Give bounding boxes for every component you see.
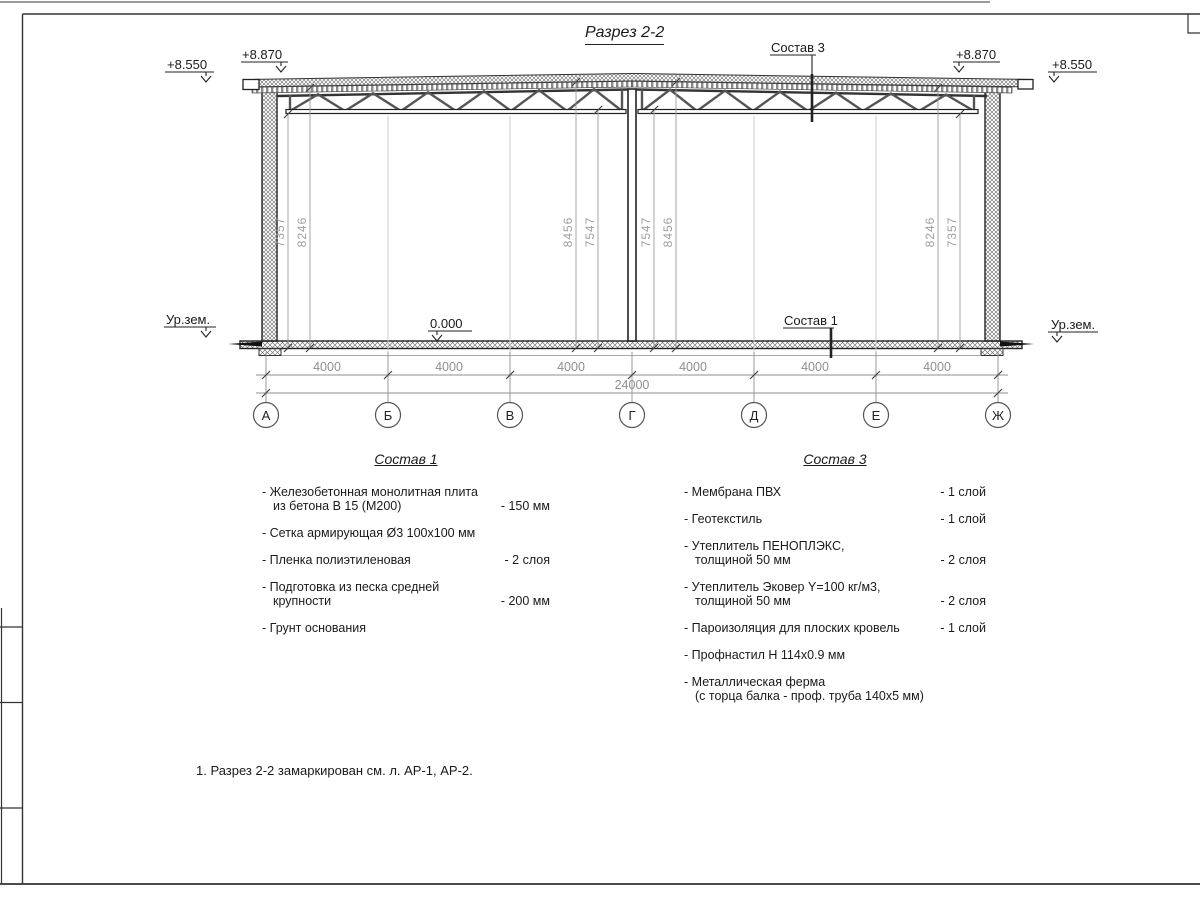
composition-3-item: - Профнастил Н 114х0.9 мм (684, 648, 986, 662)
vertical-dim-center-left-2: 7547 (583, 217, 597, 248)
axis-bubble-d: Д (750, 408, 759, 423)
composition-3-item: - Металлическая ферма (с торца балка - п… (684, 675, 986, 703)
dim-segment-3: 4000 (557, 360, 585, 374)
item-value: - 1 слой (932, 621, 986, 635)
item-name: - Грунт основания (262, 621, 366, 635)
axis-bubble-a: А (262, 408, 271, 423)
dim-segment-5: 4000 (801, 360, 829, 374)
roof-endcap-left (243, 80, 259, 90)
vertical-dimensions: 7357 8246 8456 7547 7547 8456 8246 7357 (273, 78, 964, 352)
composition-1-item: - Железобетонная монолитная плита из бет… (262, 485, 550, 513)
item-value: - 1 слой (932, 512, 986, 526)
composition-1-item: - Сетка армирующая Ø3 100х100 мм (262, 526, 550, 540)
item-name: - Мембрана ПВХ (684, 485, 781, 499)
item-value: - 2 слоя (933, 553, 986, 567)
vertical-dim-center-right-2: 8456 (661, 217, 675, 248)
section-title: Разрез 2-2 (585, 24, 664, 45)
composition-3-block: Состав 3 - Мембрана ПВХ - 1 слой - Геоте… (684, 451, 986, 703)
item-name: - Пленка полиэтиленовая (262, 553, 411, 567)
floor-level-mark (428, 331, 472, 341)
composition-3-item: - Мембрана ПВХ - 1 слой (684, 485, 986, 499)
composition-1-item: - Подготовка из песка средней крупности … (262, 580, 550, 608)
axis-bubble-b: Б (384, 408, 393, 423)
leader-sostav3-label: Состав 3 (771, 40, 825, 55)
dim-segment-4: 4000 (679, 360, 707, 374)
ground-level-label-left: Ур.зем. (166, 312, 210, 327)
roof-endcap-right (1018, 80, 1033, 90)
elevation-right-outer: +8.550 (1052, 57, 1092, 72)
item-name: - Пароизоляция для плоских кровель (684, 621, 900, 635)
axis-bubble-zh: Ж (992, 408, 1004, 423)
level-mark-right-outer (1048, 72, 1097, 82)
wall-right (985, 88, 1000, 341)
composition-1-block: Состав 1 - Железобетонная монолитная пли… (262, 451, 550, 635)
item-value: - 2 слоя (933, 594, 986, 608)
axis-bubble-g: Г (628, 408, 635, 423)
item-name: - Геотекстиль (684, 512, 765, 526)
ground-mark-right (1048, 332, 1098, 342)
floor-slab (228, 341, 1034, 356)
composition-1-title: Состав 1 (374, 451, 437, 467)
item-name: - Утеплитель ПЕНОПЛЭКС, толщиной 50 мм (684, 539, 844, 567)
item-value: - 1 слой (932, 485, 986, 499)
wall-left (262, 88, 277, 341)
ground-mark-left (164, 327, 216, 337)
dim-segment-6: 4000 (923, 360, 951, 374)
composition-3-item: - Утеплитель Эковер Y=100 кг/м3, толщино… (684, 580, 986, 608)
item-name: - Металлическая ферма (с торца балка - п… (684, 675, 924, 703)
level-mark-left-outer (165, 72, 214, 82)
vertical-dim-left-1: 7357 (273, 217, 287, 248)
vertical-dim-right-1: 8246 (923, 217, 937, 248)
column-center (628, 89, 636, 341)
level-mark-left-inner (241, 62, 288, 72)
axis-bubble-v: В (506, 408, 515, 423)
level-mark-right-inner (953, 62, 1000, 72)
item-value: - 2 слоя (497, 553, 550, 567)
sheet-frame (0, 2, 1200, 884)
grid-bubbles: А Б В Г Д Е Ж (254, 403, 1011, 428)
footing-right (981, 349, 1003, 356)
floor-level-label: 0.000 (430, 316, 463, 331)
composition-3-title: Состав 3 (803, 451, 866, 467)
elevation-right-inner: +8.870 (956, 47, 996, 62)
section-drawing: 7357 8246 8456 7547 7547 8456 8246 7357 … (0, 0, 1200, 900)
composition-3-item: - Утеплитель ПЕНОПЛЭКС, толщиной 50 мм -… (684, 539, 986, 567)
dim-segment-1: 4000 (313, 360, 341, 374)
bottom-dimensions: 4000 4000 4000 4000 4000 4000 24000 (256, 352, 1008, 402)
dim-total: 24000 (615, 378, 650, 392)
leader-sostav1-label: Состав 1 (784, 313, 838, 328)
elevation-left-inner: +8.870 (242, 47, 282, 62)
item-name: - Сетка армирующая Ø3 100х100 мм (262, 526, 475, 540)
vertical-dim-left-2: 8246 (295, 217, 309, 248)
axis-bubble-e: Е (872, 408, 881, 423)
item-name: - Профнастил Н 114х0.9 мм (684, 648, 845, 662)
composition-3-item: - Геотекстиль - 1 слой (684, 512, 986, 526)
item-name: - Подготовка из песка средней крупности (262, 580, 439, 608)
frame-corner-box (1188, 14, 1200, 33)
vertical-dim-center-left-1: 8456 (561, 217, 575, 248)
truss-left (277, 89, 628, 113)
item-name: - Утеплитель Эковер Y=100 кг/м3, толщино… (684, 580, 880, 608)
dim-segment-2: 4000 (435, 360, 463, 374)
drawing-sheet: 7357 8246 8456 7547 7547 8456 8246 7357 … (0, 0, 1200, 900)
composition-3-item: - Пароизоляция для плоских кровель - 1 с… (684, 621, 986, 635)
vertical-dim-center-right-1: 7547 (639, 217, 653, 248)
item-value: - 150 мм (493, 499, 550, 513)
elevation-left-outer: +8.550 (167, 57, 207, 72)
composition-1-item: - Грунт основания (262, 621, 550, 635)
note-text: 1. Разрез 2-2 замаркирован см. л. АР-1, … (196, 763, 473, 778)
footing-left (259, 349, 281, 356)
dim-ticks (284, 78, 964, 352)
vertical-dim-right-2: 7357 (945, 217, 959, 248)
ground-level-label-right: Ур.зем. (1051, 317, 1095, 332)
item-name: - Железобетонная монолитная плита из бет… (262, 485, 478, 513)
composition-1-item: - Пленка полиэтиленовая - 2 слоя (262, 553, 550, 567)
item-value: - 200 мм (493, 594, 550, 608)
